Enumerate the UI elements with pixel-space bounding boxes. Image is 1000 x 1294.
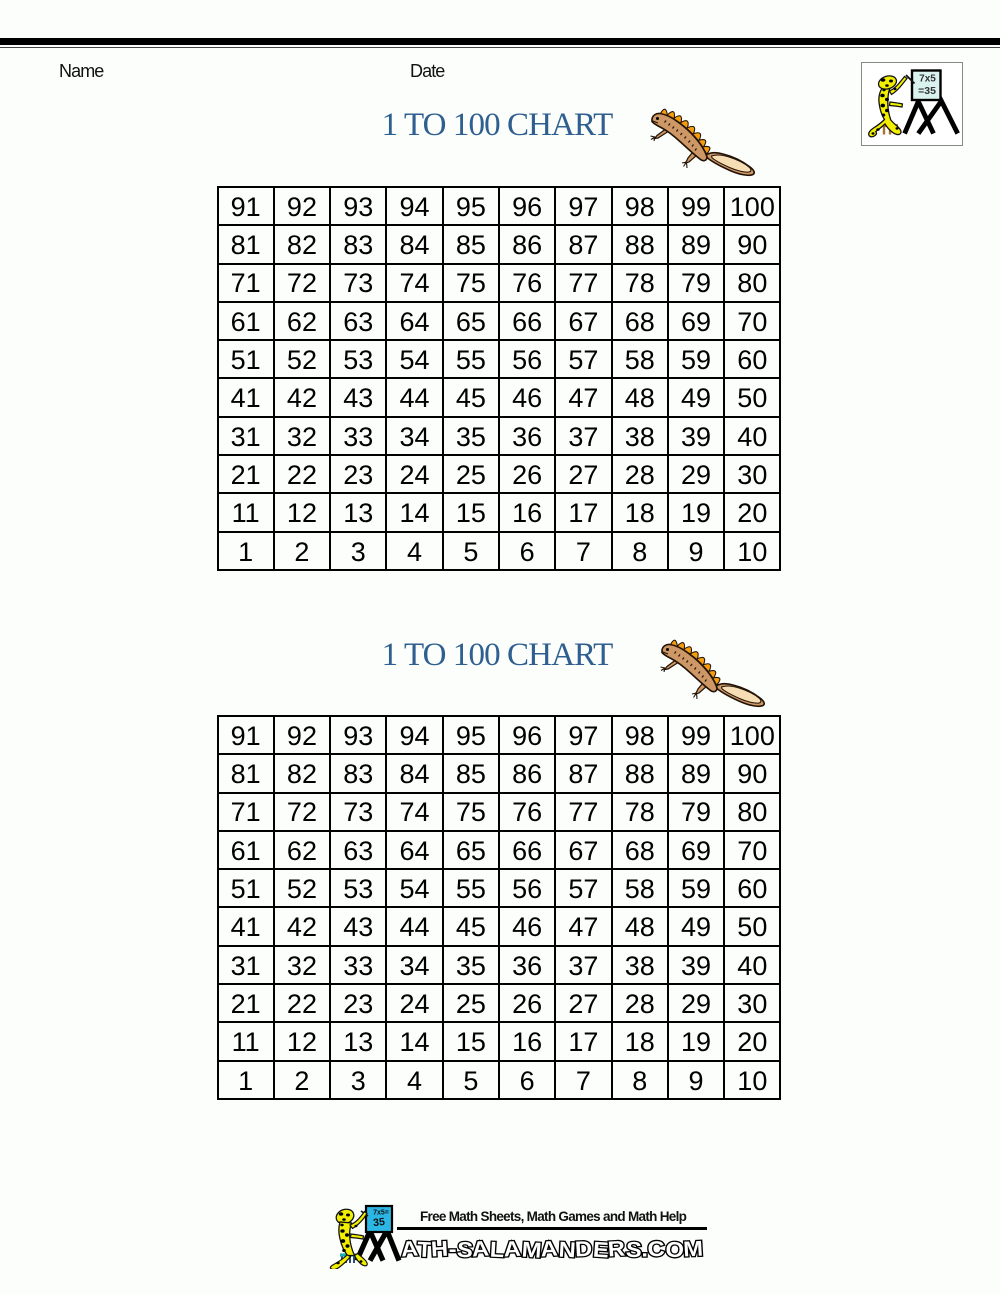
svg-text:7x5: 7x5: [919, 74, 936, 85]
svg-text:=35: =35: [918, 85, 936, 97]
svg-text:ATH-SALAMANDERS.COM: ATH-SALAMANDERS.COM: [400, 1236, 704, 1263]
svg-text:35: 35: [373, 1216, 386, 1229]
